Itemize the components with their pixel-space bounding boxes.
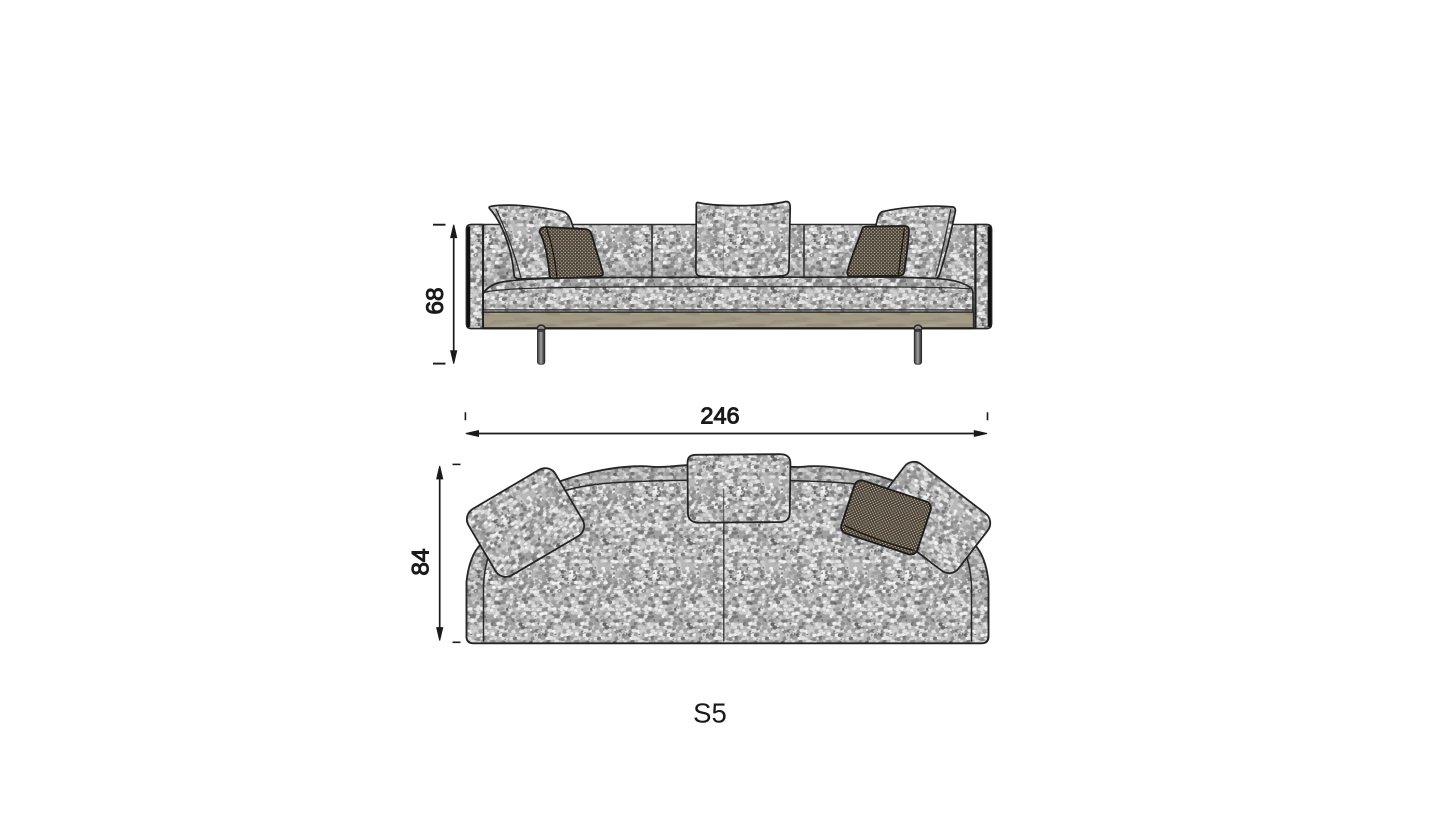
svg-text:84: 84: [407, 548, 434, 575]
svg-text:S5: S5: [693, 698, 727, 729]
svg-text:68: 68: [422, 287, 449, 314]
svg-text:246: 246: [700, 403, 739, 429]
